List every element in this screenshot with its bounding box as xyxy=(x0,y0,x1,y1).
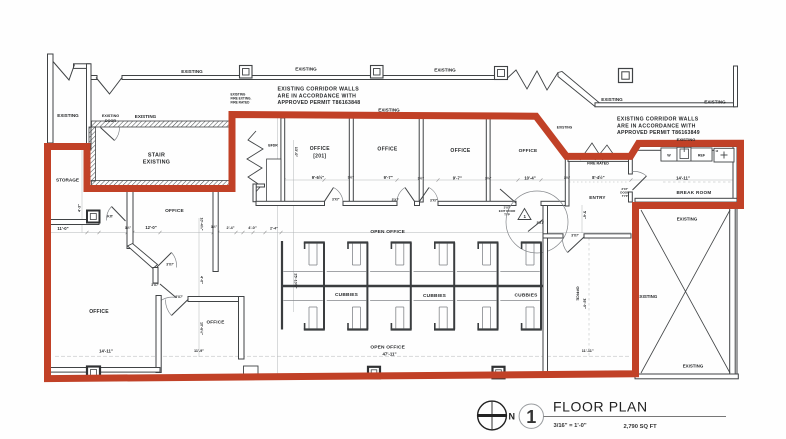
svg-text:EXISTING: EXISTING xyxy=(704,100,726,105)
svg-text:EXISTING: EXISTING xyxy=(637,294,658,299)
svg-text:14'-11": 14'-11" xyxy=(676,176,690,181)
svg-text:3½": 3½" xyxy=(125,226,132,230)
svg-text:10'-4½": 10'-4½" xyxy=(200,217,204,230)
svg-text:REF: REF xyxy=(698,154,706,158)
svg-text:EXISTING: EXISTING xyxy=(677,137,696,142)
svg-text:OFFICE: OFFICE xyxy=(450,148,470,154)
svg-text:3'X7': 3'X7' xyxy=(430,199,438,203)
svg-text:3'X7': 3'X7' xyxy=(571,234,579,238)
svg-text:14'-11": 14'-11" xyxy=(99,349,113,354)
svg-text:25'-10½": 25'-10½" xyxy=(294,273,298,288)
svg-text:3½": 3½" xyxy=(348,175,355,179)
svg-text:EXISTING: EXISTING xyxy=(677,217,698,222)
svg-text:9'-6½": 9'-6½" xyxy=(312,175,325,180)
svg-text:3'X7': 3'X7' xyxy=(175,295,183,299)
svg-text:3'X7': 3'X7' xyxy=(392,198,400,202)
svg-text:2'-4": 2'-4" xyxy=(270,227,278,231)
svg-text:EXISTING: EXISTING xyxy=(557,126,573,130)
svg-text:OFFICE: OFFICE xyxy=(519,148,538,154)
svg-text:3½": 3½" xyxy=(211,225,218,229)
svg-text:KIT: KIT xyxy=(107,215,114,219)
svg-text:3'X7': 3'X7' xyxy=(166,263,174,267)
svg-text:ENTRY: ENTRY xyxy=(589,195,605,200)
svg-text:11'-11": 11'-11" xyxy=(582,349,594,353)
svg-text:W: W xyxy=(667,154,671,158)
svg-text:FIRE RATED: FIRE RATED xyxy=(231,101,251,105)
svg-text:OFFICE: OFFICE xyxy=(576,286,581,301)
svg-text:3½": 3½" xyxy=(485,176,492,180)
svg-text:EXISTING: EXISTING xyxy=(601,97,623,102)
svg-text:13'-0": 13'-0" xyxy=(294,147,299,158)
svg-text:9'-7": 9'-7" xyxy=(384,175,393,180)
svg-text:BFDR: BFDR xyxy=(268,144,278,148)
svg-text:3/16" = 1'-0": 3/16" = 1'-0" xyxy=(554,423,587,429)
svg-text:FLOOR PLAN: FLOOR PLAN xyxy=(553,399,648,415)
svg-text:11'-0": 11'-0" xyxy=(57,226,68,231)
svg-text:16'-0": 16'-0" xyxy=(583,298,588,309)
svg-text:TYP: TYP xyxy=(504,213,510,217)
svg-text:3'X7': 3'X7' xyxy=(151,283,159,287)
svg-text:EXISTING: EXISTING xyxy=(57,113,79,118)
svg-text:2,790 SQ FT: 2,790 SQ FT xyxy=(624,424,658,430)
svg-text:OFFICE: OFFICE xyxy=(206,320,224,325)
svg-text:CUBBIES: CUBBIES xyxy=(423,293,447,299)
svg-text:N: N xyxy=(509,412,516,422)
svg-text:10'-4": 10'-4" xyxy=(524,176,535,181)
svg-text:[201]: [201] xyxy=(313,154,326,160)
svg-text:TYP: TYP xyxy=(622,194,628,198)
svg-text:EXISTING: EXISTING xyxy=(683,364,704,369)
svg-text:3'X7': 3'X7' xyxy=(332,197,340,201)
svg-text:ARE IN ACCORDANCE WITH: ARE IN ACCORDANCE WITH xyxy=(278,93,357,99)
svg-text:8'-4½": 8'-4½" xyxy=(592,175,605,180)
svg-text:5'-6": 5'-6" xyxy=(583,211,587,219)
svg-text:EXISTING: EXISTING xyxy=(378,108,400,113)
svg-text:OFFICE: OFFICE xyxy=(89,309,109,315)
svg-text:OPEN OFFICE: OPEN OFFICE xyxy=(370,344,405,350)
svg-text:OFFICE: OFFICE xyxy=(377,147,397,153)
svg-text:12'-0": 12'-0" xyxy=(145,225,156,230)
svg-text:10'-6½": 10'-6½" xyxy=(200,322,204,335)
svg-text:APPROVED PERMIT T86163848: APPROVED PERMIT T86163848 xyxy=(278,100,361,106)
svg-text:CUBBIES: CUBBIES xyxy=(515,292,539,298)
svg-text:CUBBIES: CUBBIES xyxy=(335,292,359,298)
svg-text:11'-9": 11'-9" xyxy=(194,349,204,353)
svg-text:4'-3": 4'-3" xyxy=(78,204,82,212)
svg-text:EXISTING: EXISTING xyxy=(295,67,317,72)
svg-text:EXISTING: EXISTING xyxy=(143,160,171,166)
svg-text:1: 1 xyxy=(526,407,536,427)
svg-text:3½": 3½" xyxy=(564,176,571,180)
svg-text:STAIR: STAIR xyxy=(148,153,165,159)
svg-text:OFFICE: OFFICE xyxy=(310,146,330,152)
svg-text:EXISTING CORRIDOR WALLS: EXISTING CORRIDOR WALLS xyxy=(278,87,360,93)
svg-text:EXISTING: EXISTING xyxy=(181,69,203,74)
svg-text:FIRE RATED: FIRE RATED xyxy=(587,162,609,166)
svg-text:4'-0": 4'-0" xyxy=(248,225,257,230)
svg-text:OFFICE: OFFICE xyxy=(165,208,184,214)
svg-text:ARE IN ACCORDANCE WITH: ARE IN ACCORDANCE WITH xyxy=(617,123,696,129)
svg-text:EXISTING: EXISTING xyxy=(102,114,119,118)
svg-text:STORAGE: STORAGE xyxy=(56,178,79,183)
svg-text:4'-0": 4'-0" xyxy=(200,276,204,284)
svg-text:DOOR: DOOR xyxy=(105,119,116,123)
svg-text:47'-11": 47'-11" xyxy=(382,352,396,357)
svg-text:EXISTING: EXISTING xyxy=(135,114,157,119)
svg-text:BREAK ROOM: BREAK ROOM xyxy=(677,190,712,195)
svg-text:2'-4": 2'-4" xyxy=(227,226,235,230)
svg-text:EXISTING CORRIDOR WALLS: EXISTING CORRIDOR WALLS xyxy=(617,117,699,123)
svg-text:9'-7": 9'-7" xyxy=(453,176,462,181)
svg-text:OPEN OFFICE: OPEN OFFICE xyxy=(370,229,405,235)
svg-text:3'X7': 3'X7' xyxy=(537,221,545,225)
svg-text:APPROVED PERMIT T86163849: APPROVED PERMIT T86163849 xyxy=(617,130,700,136)
svg-text:EXISTING: EXISTING xyxy=(434,68,456,73)
svg-text:3½": 3½" xyxy=(418,176,425,180)
